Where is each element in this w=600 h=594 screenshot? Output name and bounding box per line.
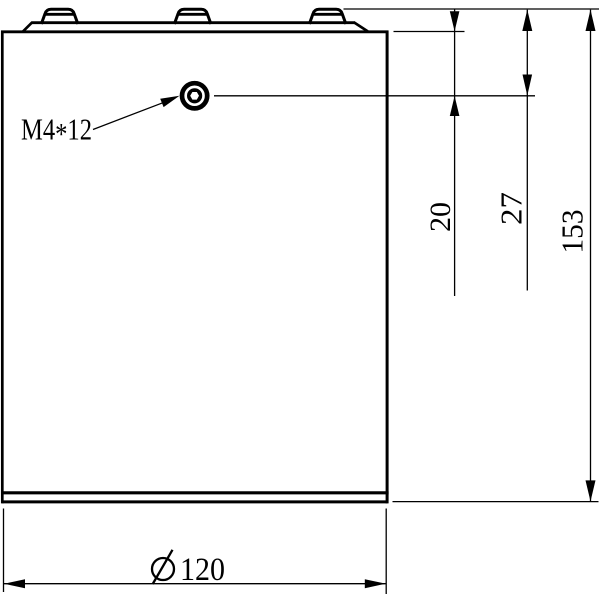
svg-text:120: 120 — [180, 552, 225, 588]
svg-text:153: 153 — [554, 210, 589, 254]
svg-text:27: 27 — [494, 192, 529, 225]
svg-text:M4*12: M4*12 — [21, 111, 92, 151]
svg-text:20: 20 — [424, 202, 457, 232]
